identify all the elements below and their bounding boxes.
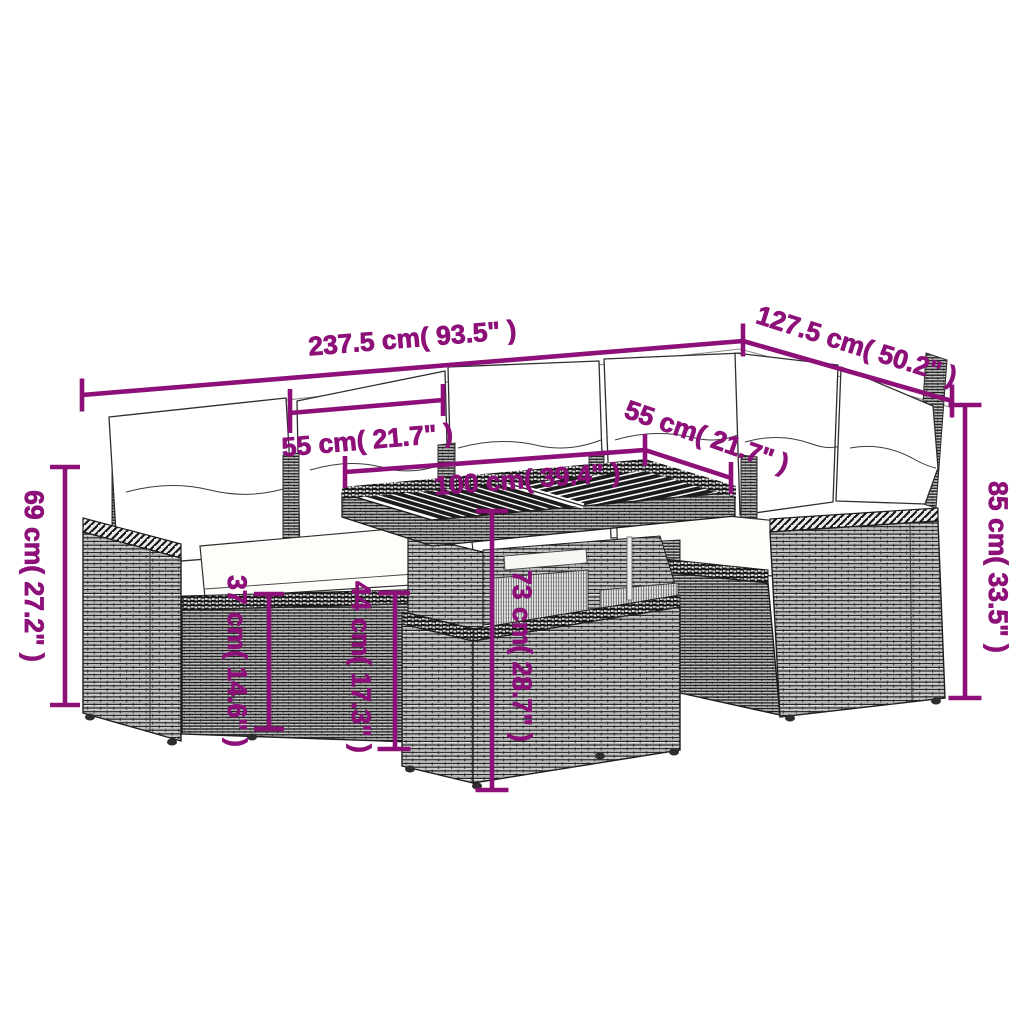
svg-text:44 cm( 17.3" ): 44 cm( 17.3" ) [346,581,376,753]
svg-text:69 cm( 27.2" ): 69 cm( 27.2" ) [19,490,49,662]
svg-text:37 cm( 14.6" ): 37 cm( 14.6" ) [222,575,252,747]
svg-text:85 cm( 33.5" ): 85 cm( 33.5" ) [983,481,1013,653]
svg-text:73 cm( 28.7" ): 73 cm( 28.7" ) [507,570,537,742]
